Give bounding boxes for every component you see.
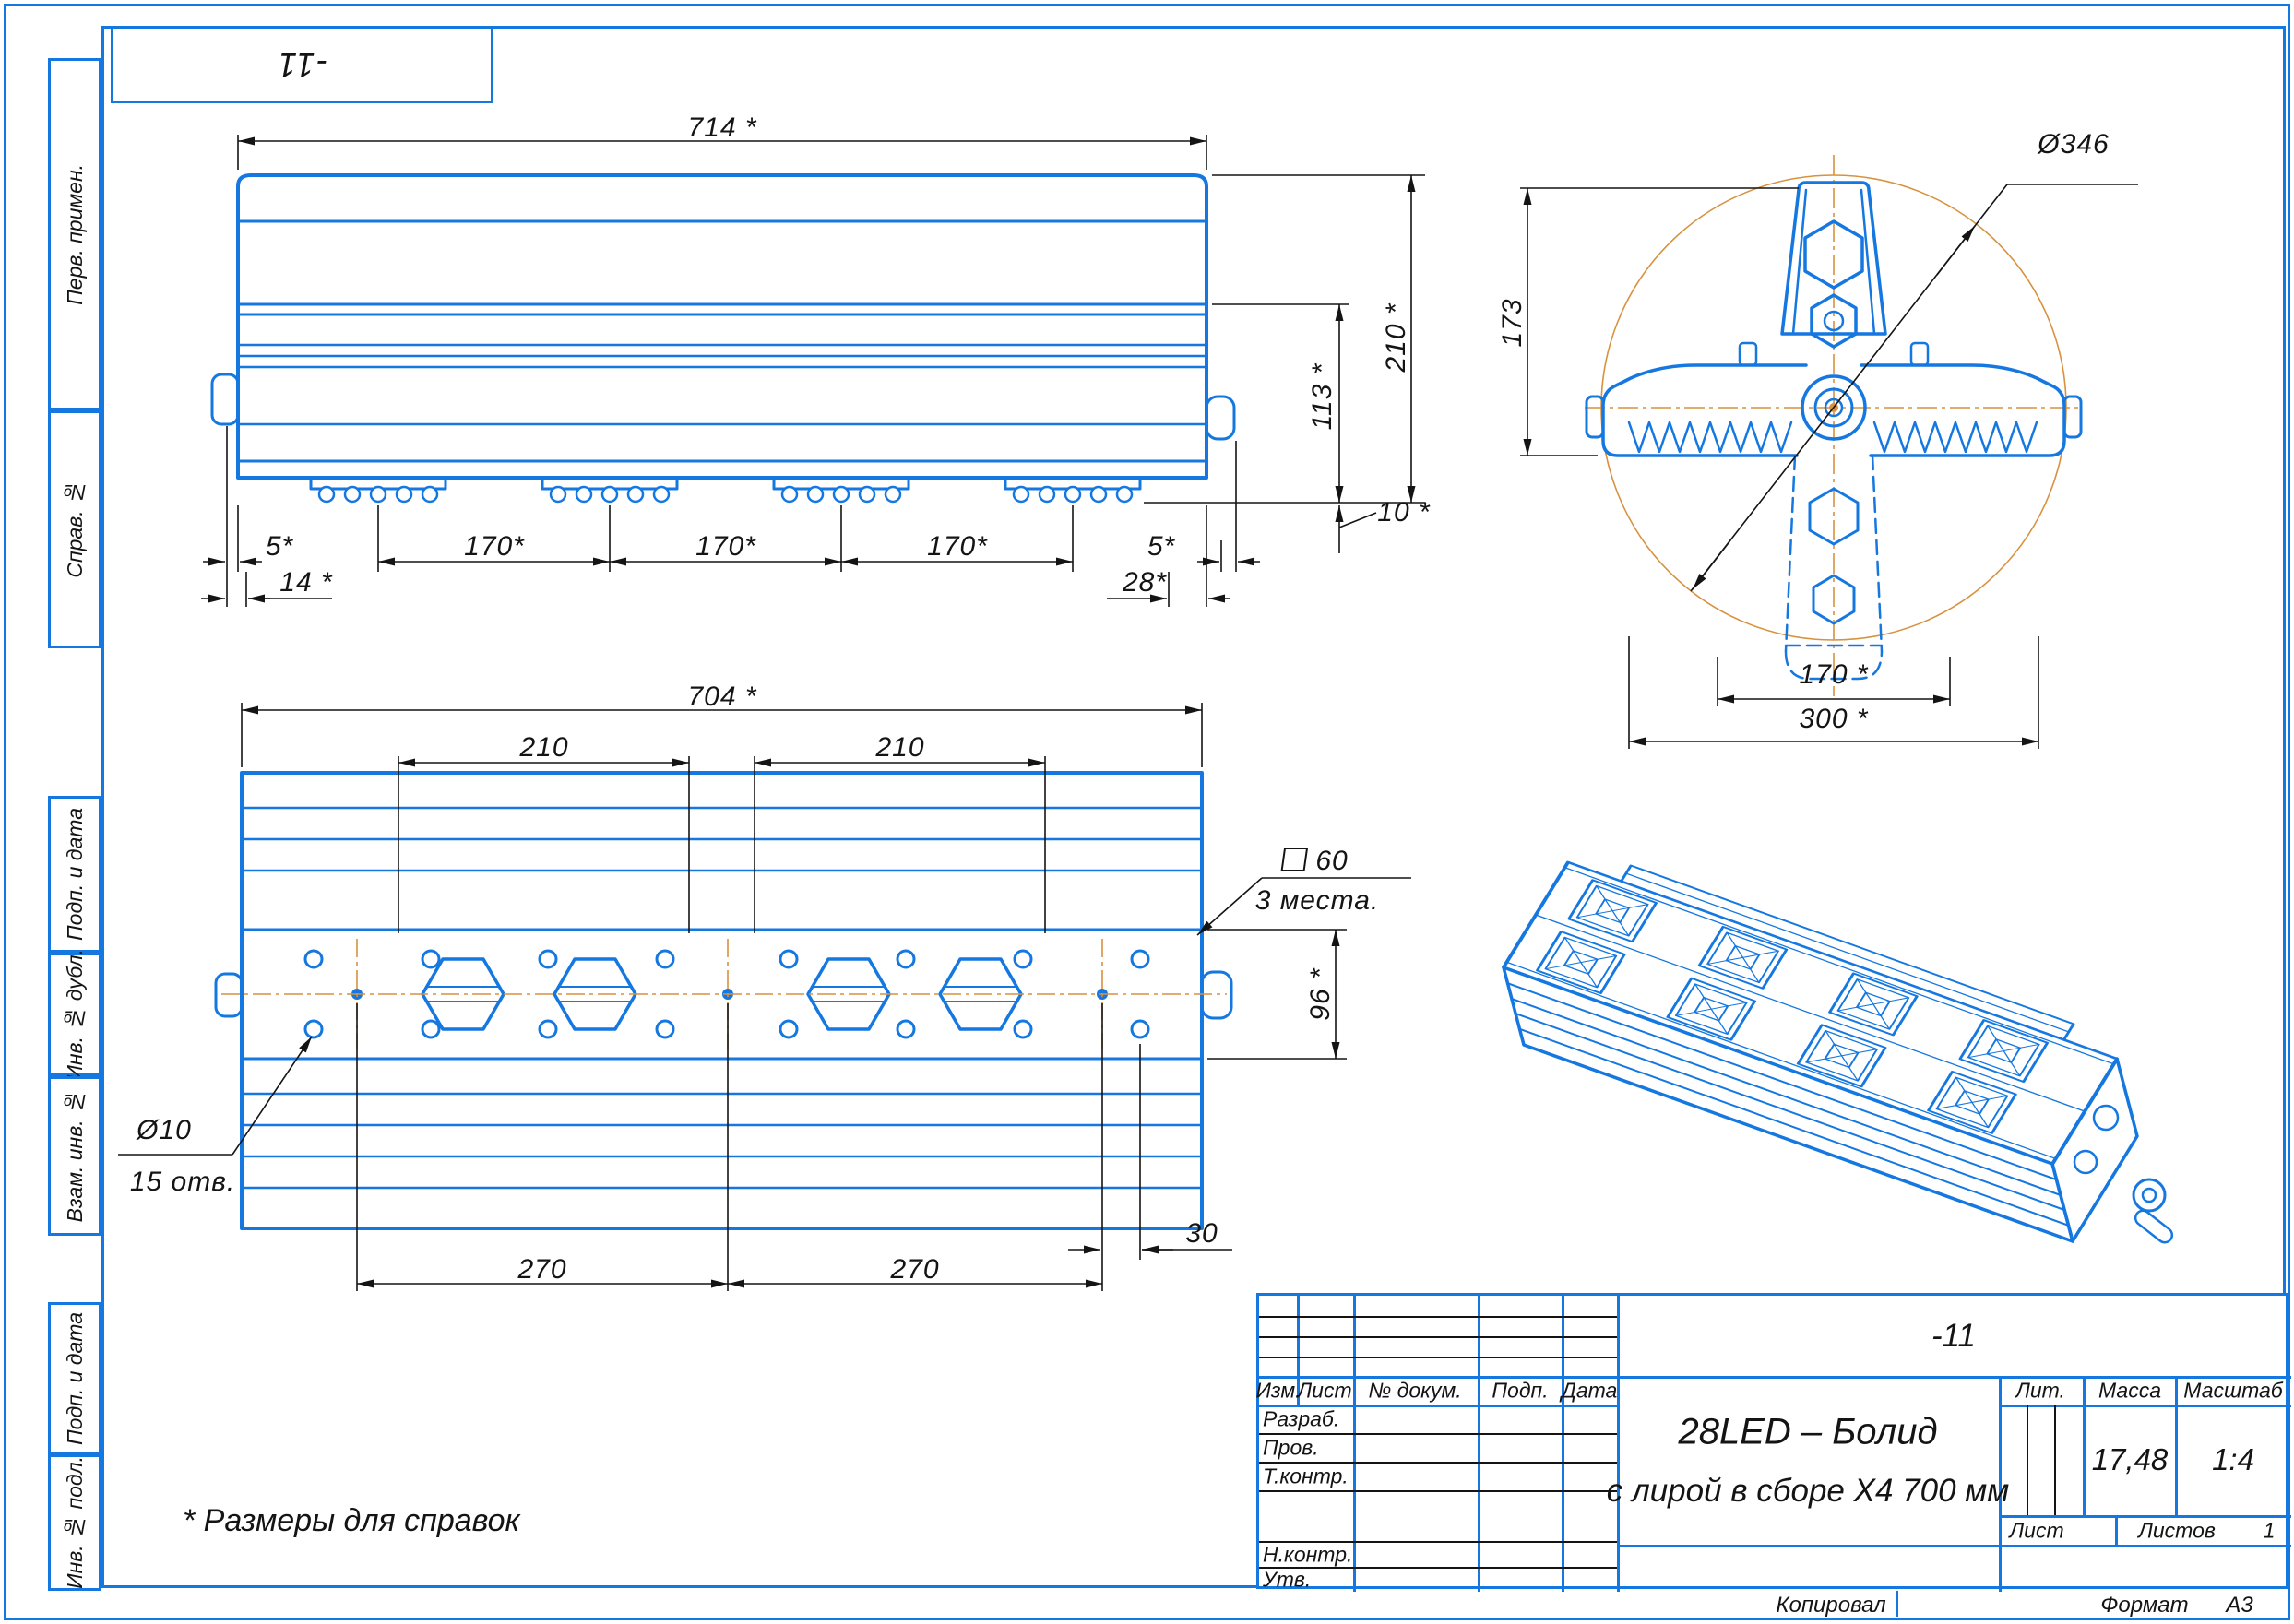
footer-copied: Копировал [1776, 1593, 1885, 1618]
dim-lyre-diameter: Ø346 [2038, 129, 2109, 160]
tb-sheet-label: Лист [2009, 1519, 2063, 1544]
plan-view [216, 773, 1231, 1228]
tb-col-data: Дата [1562, 1379, 1618, 1404]
dim-front-offset-right: 28* [1123, 567, 1167, 599]
dim-plan-bottom-3: 30 [1185, 1218, 1218, 1250]
drawing-sheet: -11 Перв. примен. Справ. № Подп. и дата … [0, 0, 2294, 1624]
tb-mass-label: Масса [2098, 1379, 2161, 1404]
dim-front-height: 210 * [1381, 302, 1412, 372]
tb-row-prov: Пров. [1263, 1436, 1319, 1461]
dim-plan-square-note: 3 места. [1255, 885, 1380, 917]
tb-lit-label: Лит. [2015, 1379, 2065, 1404]
title-block: Изм. Лист № докум. Подп. Дата Разраб. Пр… [1256, 1293, 2288, 1589]
dim-plan-bottom-1: 270 [517, 1254, 566, 1286]
footer-format-value: А3 [2226, 1593, 2252, 1618]
plan-centerlines [221, 939, 1227, 1049]
tb-designation: -11 [1931, 1318, 1976, 1355]
tb-col-podp: Подп. [1492, 1379, 1548, 1404]
dim-front-edge-right: 5* [1147, 531, 1175, 563]
dim-plan-hole-count: 15 отв. [130, 1167, 235, 1198]
tb-name-line1: 28LED – Болид [1678, 1412, 1937, 1453]
tb-col-izm: Изм. [1255, 1379, 1301, 1404]
tb-col-list: Лист [1297, 1379, 1351, 1404]
tb-name-line2: с лирой в сборе Х4 700 мм [1607, 1473, 2010, 1510]
dim-plan-bottom-2: 270 [890, 1254, 939, 1286]
front-view [212, 175, 1234, 502]
square-value: 60 [1315, 846, 1348, 876]
tb-row-nkontr: Н.контр. [1263, 1543, 1352, 1568]
dim-front-width: 714 * [687, 113, 756, 144]
dim-lyre-height: 173 [1497, 298, 1528, 347]
tb-col-dokum: № докум. [1368, 1379, 1461, 1404]
dim-front-edge-left: 5* [266, 531, 293, 563]
dim-front-offset-left: 14 * [279, 567, 332, 599]
plan-view-dims [118, 703, 1411, 1291]
iso-view [1504, 847, 2175, 1246]
tb-sheets-value: 1 [2264, 1519, 2276, 1544]
footer-format-label: Формат [2100, 1593, 2188, 1618]
dim-front-pitch-2: 170* [695, 531, 756, 563]
tb-scale-label: Масштаб [2183, 1379, 2282, 1404]
square-symbol [1280, 848, 1308, 871]
dim-front-pitch-1: 170* [464, 531, 525, 563]
tb-scale-value: 1:4 [2212, 1442, 2254, 1477]
dim-lyre-width: 300 * [1799, 704, 1868, 735]
tb-sheets-label: Листов [2138, 1519, 2216, 1544]
dim-plan-height: 96 * [1305, 967, 1337, 1020]
dim-plan-hole-dia: Ø10 [137, 1115, 192, 1146]
dim-front-body-height: 113 * [1307, 363, 1338, 431]
tb-row-tkontr: Т.контр. [1263, 1464, 1349, 1489]
tb-row-razrab: Разраб. [1263, 1407, 1339, 1432]
dim-plan-span-1: 210 [519, 732, 568, 764]
dim-plan-span-2: 210 [875, 732, 924, 764]
reference-note: * Размеры для справок [183, 1503, 520, 1539]
tb-mass-value: 17,48 [2092, 1442, 2169, 1477]
dim-plan-square: 60 [1282, 846, 1348, 877]
dim-front-foot: 10 * [1377, 497, 1430, 528]
dim-plan-width: 704 * [687, 682, 756, 713]
dim-front-pitch-3: 170* [927, 531, 988, 563]
front-view-dims [201, 135, 1425, 607]
dim-lyre-pitch: 170 * [1799, 659, 1868, 691]
tb-row-utv: Утв. [1263, 1568, 1311, 1593]
footer-divider [1896, 1591, 1898, 1617]
